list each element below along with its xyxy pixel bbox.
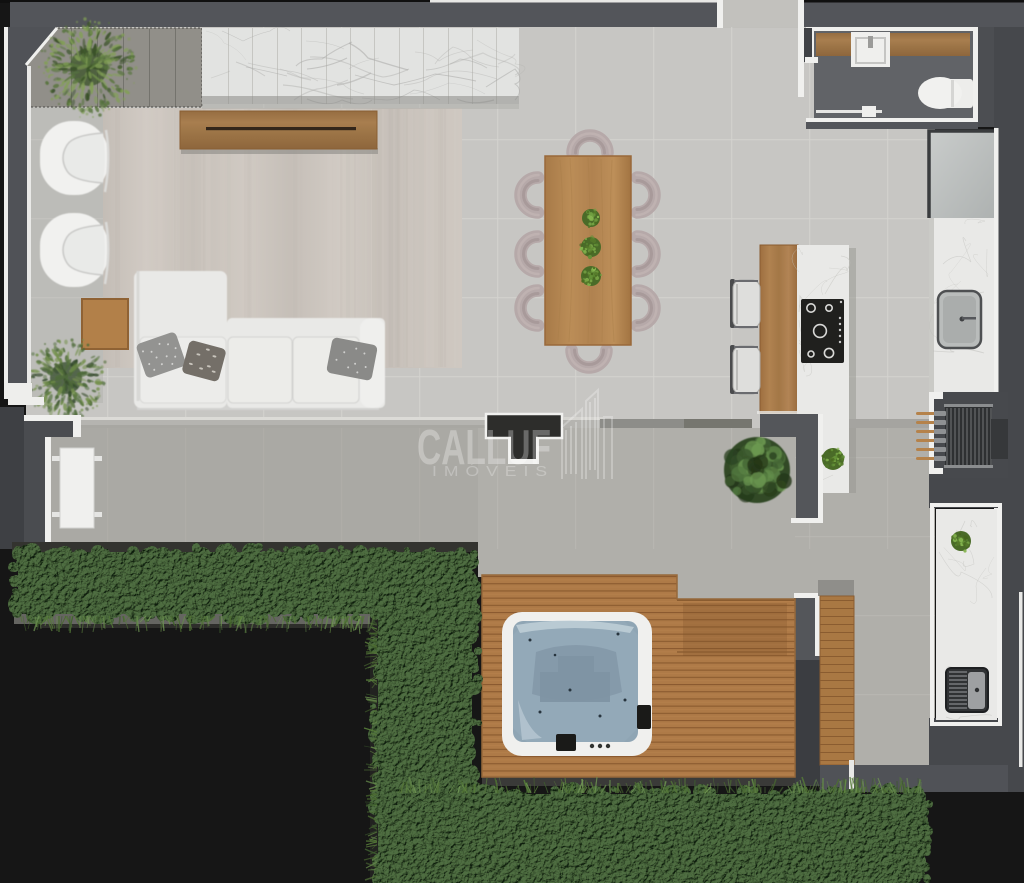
svg-text:IMÓVEIS: IMÓVEIS <box>432 463 554 480</box>
